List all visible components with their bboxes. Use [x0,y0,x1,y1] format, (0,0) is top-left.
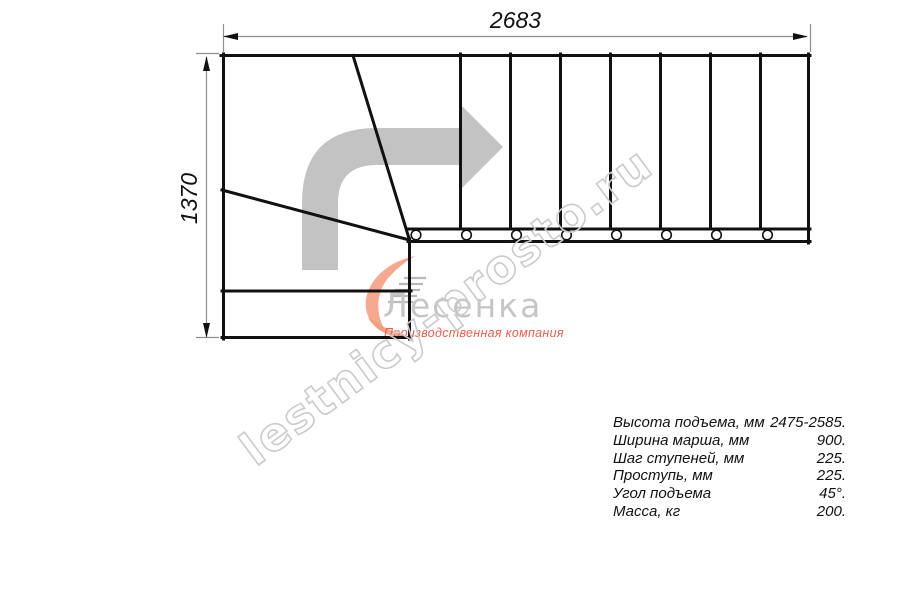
spec-value: 225. [817,450,846,468]
spec-row-height: Высота подъема, мм 2475-2585. [613,414,846,432]
spec-label: Масса, кг [613,503,680,521]
spec-row-width: Ширина марша, мм 900. [613,432,846,450]
spec-row-mass: Масса, кг 200. [613,503,846,521]
specs-table: Высота подъема, мм 2475-2585. Ширина мар… [613,414,846,521]
logo-tagline: Производственная компания [384,326,574,340]
left-dimension-label: 1370 [176,141,203,256]
spec-row-step: Шаг ступеней, мм 225. [613,450,846,468]
spec-label: Шаг ступеней, мм [613,450,744,468]
logo-brand-text: Лесенка [383,286,573,325]
spec-value: 200. [817,503,846,521]
spec-row-tread: Проступь, мм 225. [613,467,846,485]
spec-row-angle: Угол подъема 45°. [613,485,846,503]
top-dimension-label: 2683 [458,7,573,34]
spec-value: 900. [817,432,846,450]
spec-value: 225. [817,467,846,485]
spec-label: Проступь, мм [613,467,713,485]
spec-label: Ширина марша, мм [613,432,749,450]
spec-label: Угол подъема [613,485,711,503]
spec-label: Высота подъема, мм [613,414,765,432]
spec-value: 2475-2585. [770,414,846,432]
spec-value: 45°. [819,485,846,503]
staircase-drawing-page: Лесенка Производственная компания [0,0,900,600]
